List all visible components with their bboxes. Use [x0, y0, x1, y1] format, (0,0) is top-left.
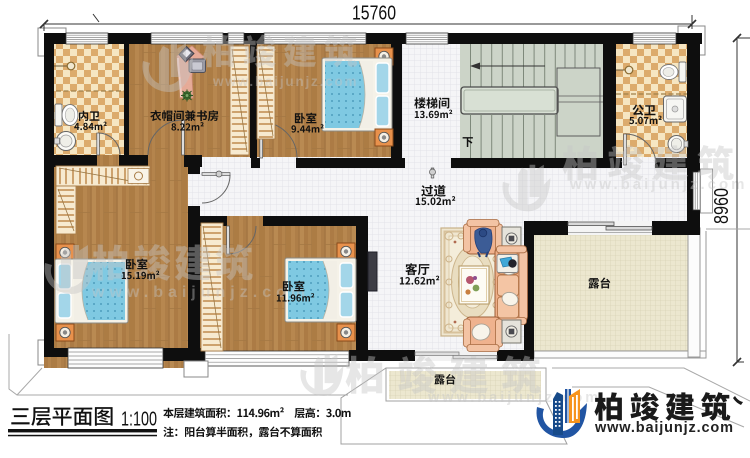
svg-text:www.baijunjz.com: www.baijunjz.com — [91, 284, 310, 301]
svg-text:1:100: 1:100 — [121, 409, 157, 431]
svg-text:8960: 8960 — [711, 188, 733, 224]
svg-text:15760: 15760 — [352, 3, 396, 25]
svg-text:www.baijunjz.com: www.baijunjz.com — [594, 420, 733, 436]
svg-text:www.baijunjz.com: www.baijunjz.com — [212, 74, 358, 89]
